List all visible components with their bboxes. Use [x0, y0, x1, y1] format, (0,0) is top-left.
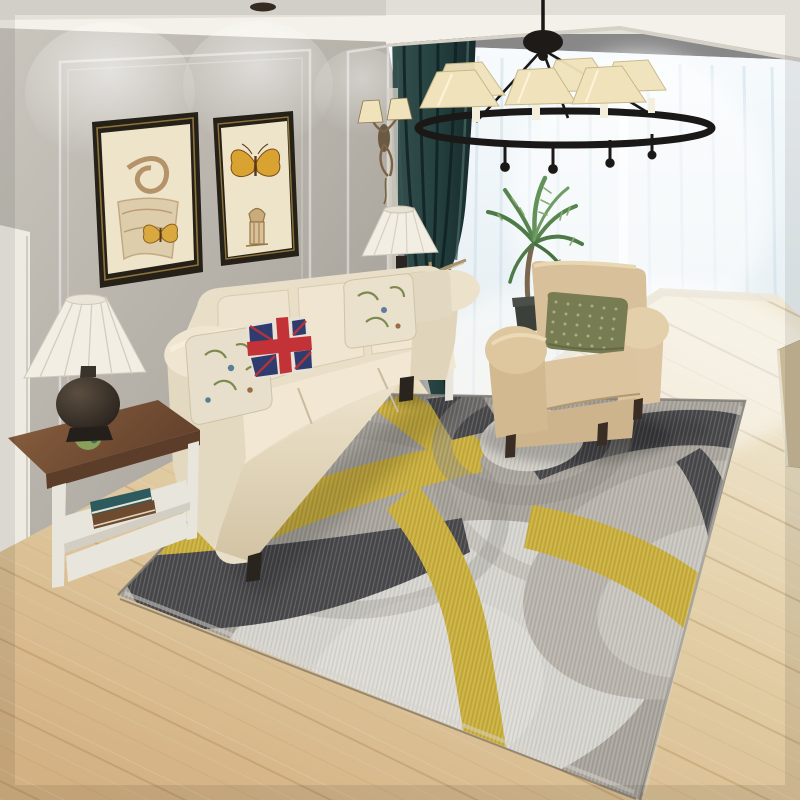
olive-pillow — [545, 292, 628, 355]
armchair-foot — [597, 422, 608, 446]
living-room-photo: Bright living room product photo: cream … — [0, 0, 800, 800]
sofa-foot — [246, 552, 262, 582]
armchair-foot — [633, 398, 643, 420]
framed-art-column-butterfly — [92, 112, 203, 288]
table-lamp-base — [56, 377, 120, 431]
living-room-scene: Bright living room product photo: cream … — [0, 0, 800, 800]
sofa-foot — [399, 376, 414, 402]
framed-art-butterfly-tower — [213, 111, 299, 266]
armchair-foot — [505, 434, 516, 458]
union-jack-pillow — [246, 316, 313, 380]
window-mullion — [619, 90, 628, 290]
